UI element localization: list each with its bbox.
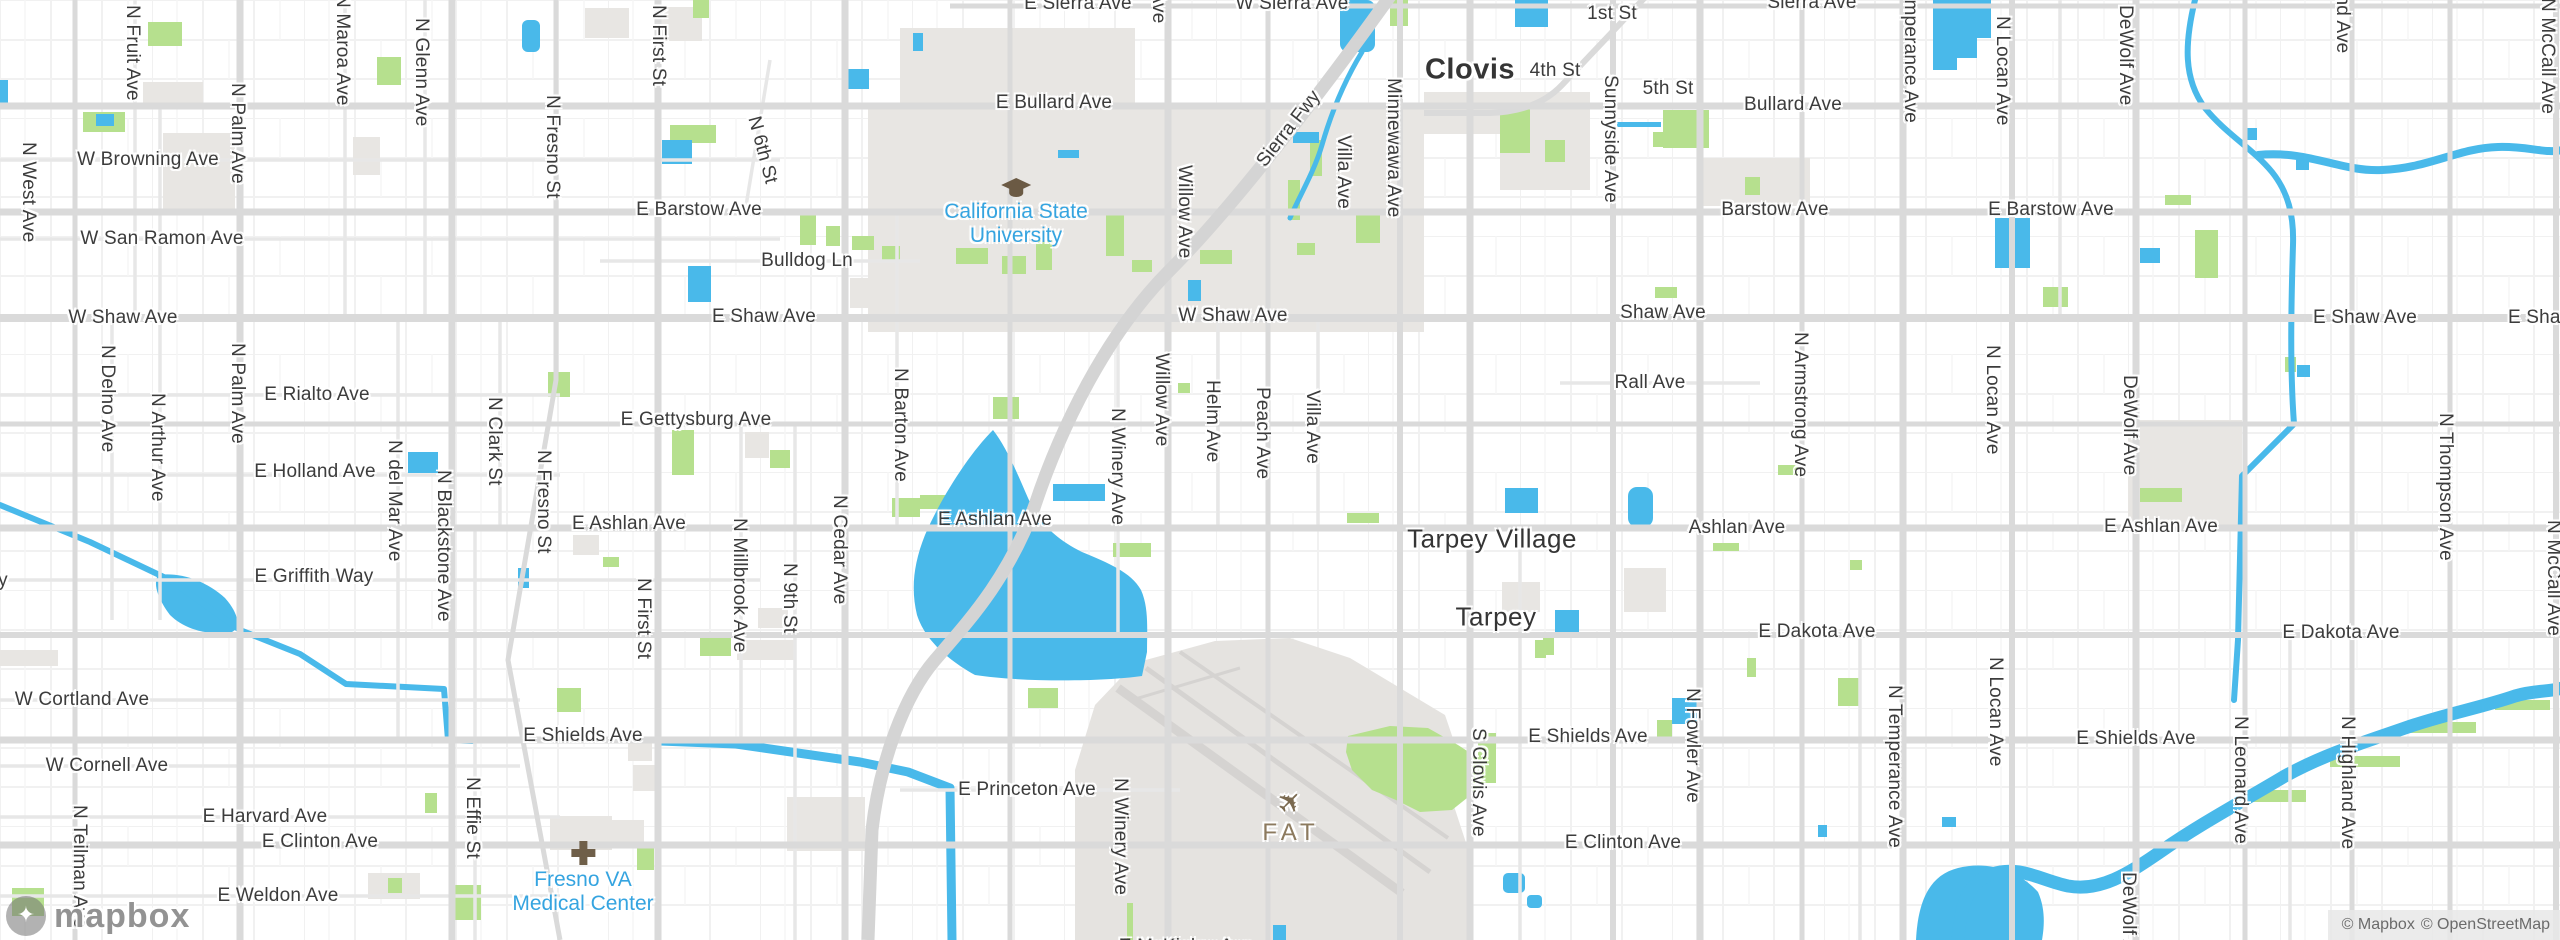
osm-attribution-link[interactable]: © OpenStreetMap <box>2421 916 2550 934</box>
mapbox-attribution-link[interactable]: © Mapbox <box>2342 916 2415 934</box>
map-viewport[interactable]: E Sierra AveW Sierra AveSierra Ave1st St… <box>0 0 2560 940</box>
attribution-bar: © Mapbox © OpenStreetMap <box>2328 910 2560 940</box>
map-canvas[interactable] <box>0 0 2560 940</box>
mapbox-logo-icon <box>6 896 46 936</box>
mapbox-logo[interactable]: mapbox <box>6 896 190 936</box>
mapbox-wordmark: mapbox <box>54 897 190 936</box>
